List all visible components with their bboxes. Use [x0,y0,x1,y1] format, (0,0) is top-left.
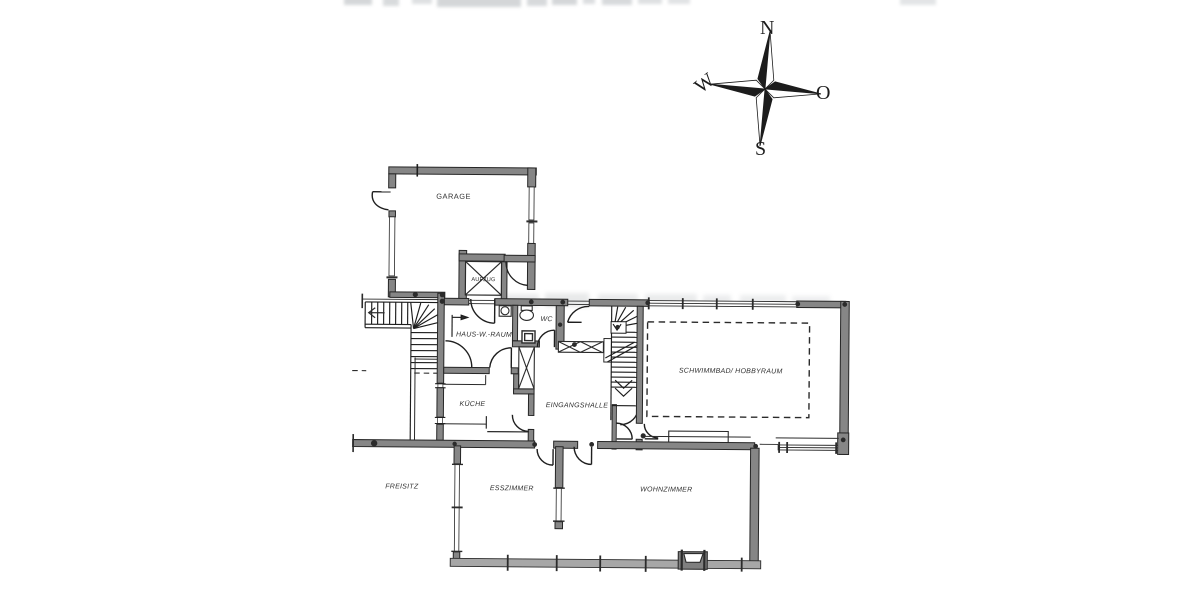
svg-text:HAUS-W.-RAUM: HAUS-W.-RAUM [456,331,512,338]
svg-text:W: W [690,69,719,98]
svg-text:AUFZUG: AUFZUG [471,277,495,283]
svg-text:GARAGE: GARAGE [436,192,471,201]
svg-text:N: N [760,17,774,39]
svg-text:FREISITZ: FREISITZ [385,483,419,490]
svg-text:KÜCHE: KÜCHE [460,400,486,408]
svg-text:EINGANGSHALLE: EINGANGSHALLE [546,402,609,409]
svg-text:WOHNZIMMER: WOHNZIMMER [640,486,692,493]
svg-text:ESSZIMMER: ESSZIMMER [490,485,534,492]
svg-text:WC: WC [541,316,554,323]
svg-text:S: S [755,138,766,160]
svg-text:O: O [816,82,830,104]
svg-text:SCHWIMMBAD/ HOBBYRAUM: SCHWIMMBAD/ HOBBYRAUM [679,368,783,376]
